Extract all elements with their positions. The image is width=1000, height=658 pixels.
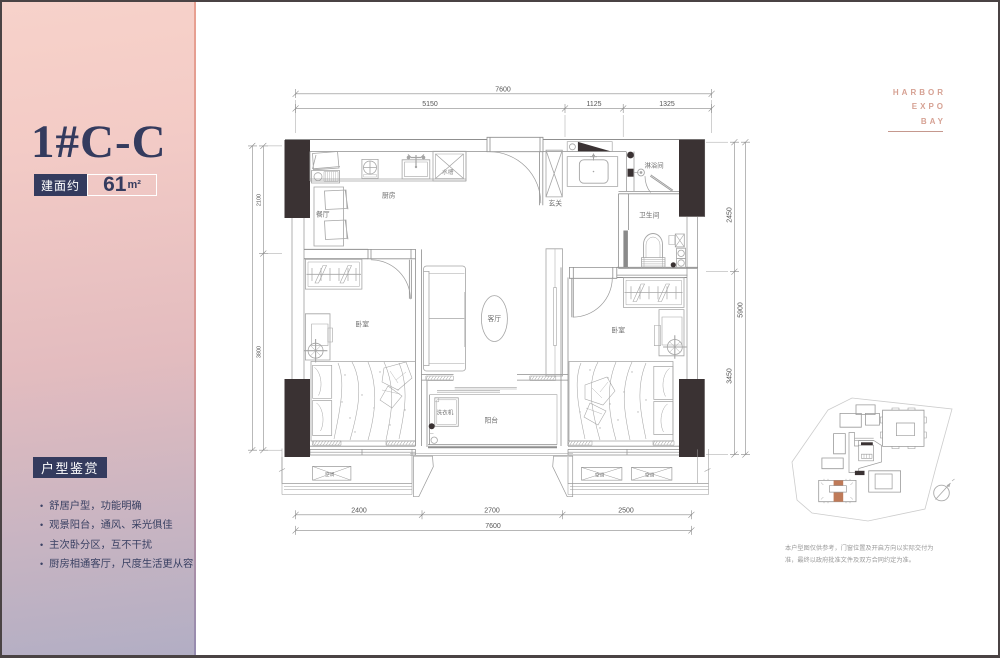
svg-text:7600: 7600 [485, 523, 501, 530]
svg-text:1325: 1325 [659, 101, 675, 108]
svg-text:餐厅: 餐厅 [316, 210, 330, 219]
svg-text:玄关: 玄关 [549, 199, 563, 208]
svg-text:3800: 3800 [257, 346, 263, 358]
svg-text:洗衣机: 洗衣机 [437, 409, 454, 417]
svg-text:3450: 3450 [727, 368, 734, 384]
svg-text:7600: 7600 [495, 87, 511, 94]
svg-text:客厅: 客厅 [488, 314, 502, 323]
svg-text:水槽: 水槽 [442, 168, 454, 176]
svg-text:卫生间: 卫生间 [639, 211, 660, 220]
svg-text:空调: 空调 [325, 471, 335, 478]
svg-text:厨房: 厨房 [382, 191, 396, 200]
svg-text:5900: 5900 [738, 302, 745, 318]
svg-text:2500: 2500 [618, 508, 634, 515]
svg-text:5150: 5150 [422, 101, 438, 108]
svg-text:2100: 2100 [257, 194, 263, 206]
svg-text:阳台: 阳台 [485, 416, 499, 425]
svg-text:卧室: 卧室 [612, 326, 626, 335]
svg-text:空调: 空调 [595, 472, 605, 479]
svg-text:2450: 2450 [727, 207, 734, 223]
svg-text:2400: 2400 [351, 508, 367, 515]
svg-text:2700: 2700 [484, 508, 500, 515]
svg-text:卧室: 卧室 [356, 320, 370, 329]
svg-text:淋浴间: 淋浴间 [645, 161, 664, 170]
svg-text:空调: 空调 [645, 472, 655, 479]
svg-text:1125: 1125 [586, 101, 601, 108]
